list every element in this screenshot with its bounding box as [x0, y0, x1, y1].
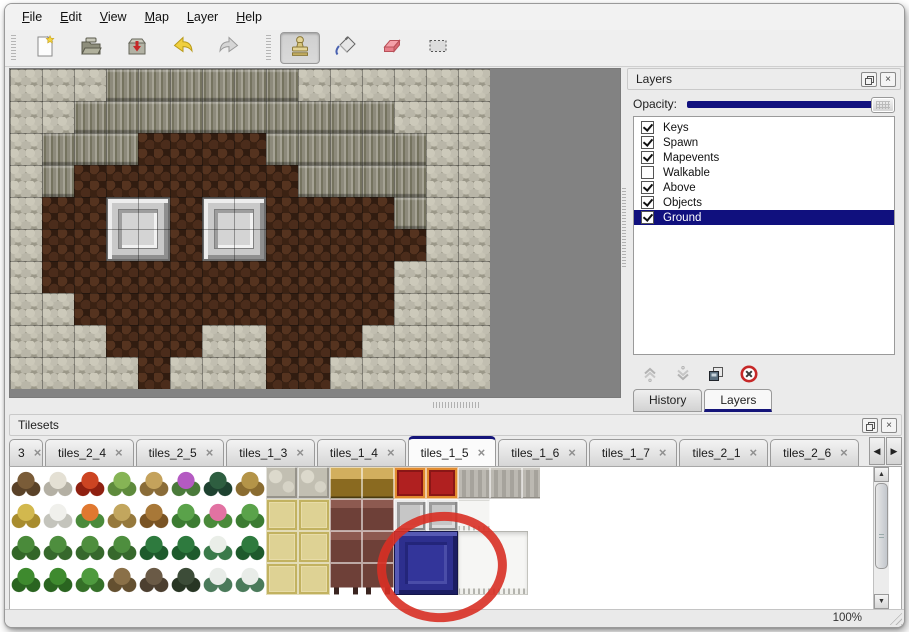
- map-tile-ground: [42, 197, 74, 229]
- tileset-tab-label: tiles_2_1: [692, 446, 740, 460]
- layer-name: Above: [663, 182, 696, 194]
- map-tile-wall-top: [10, 261, 42, 293]
- map-tile-wall-face: [362, 101, 394, 133]
- tileset-tile-trunk[interactable]: [138, 467, 170, 499]
- map-tile-wall-top: [426, 197, 458, 229]
- map-tile-ground: [202, 133, 234, 165]
- tab-scroll-right-icon[interactable]: ▶: [886, 437, 902, 465]
- tileset-tile-table-maroon-legs[interactable]: [330, 563, 362, 595]
- layer-visibility-checkbox[interactable]: [641, 211, 654, 224]
- map-tile-wall-top: [426, 101, 458, 133]
- map-tile-ground: [266, 261, 298, 293]
- map-tile-ground: [138, 133, 170, 165]
- layer-row-spawn[interactable]: Spawn: [634, 135, 894, 150]
- map-tile-ground: [138, 165, 170, 197]
- map-tile-wall-face: [298, 165, 330, 197]
- tileset-tile-mat-tan[interactable]: [298, 499, 330, 531]
- map-tile-wall-face: [330, 101, 362, 133]
- undo-arrow-icon: [171, 34, 195, 63]
- toolbar-drag-handle[interactable]: [11, 35, 16, 61]
- map-tile-wall-top: [426, 229, 458, 261]
- float-icon[interactable]: [861, 72, 877, 87]
- layer-name: Spawn: [663, 137, 698, 149]
- map-tile-wall-face: [362, 133, 394, 165]
- close-icon[interactable]: ×: [881, 418, 897, 433]
- map-tile-ground: [266, 357, 298, 389]
- layers-dock: Layers × Opacity: KeysSpawnMapeventsWalk…: [627, 68, 901, 412]
- menu-bar: FileEditViewMapLayerHelp: [5, 4, 904, 30]
- map-tile-wall-top: [394, 69, 426, 101]
- tileset-tab-tiles_1_5[interactable]: tiles_1_5×: [408, 436, 497, 467]
- tileset-tile-sprouts[interactable]: [10, 531, 42, 563]
- layer-row-mapevents[interactable]: Mapevents: [634, 150, 894, 165]
- tileset-tile-stone[interactable]: [266, 467, 298, 499]
- map-tile-wall-top: [458, 69, 490, 101]
- tileset-tile-flowers-orange[interactable]: [74, 499, 106, 531]
- menu-map[interactable]: Map: [136, 6, 178, 28]
- float-icon[interactable]: [862, 418, 878, 433]
- map-tile-ground: [138, 357, 170, 389]
- menu-help[interactable]: Help: [227, 6, 271, 28]
- map-tile-ground: [362, 197, 394, 229]
- map-tile-wall-top: [74, 325, 106, 357]
- menu-view[interactable]: View: [91, 6, 136, 28]
- map-tile-wall-face: [394, 165, 426, 197]
- map-tile-ground: [170, 293, 202, 325]
- tileset-tab-tiles_1_4[interactable]: tiles_1_4×: [317, 439, 406, 466]
- map-tile-wall-face: [42, 133, 74, 165]
- map-tile-wall-top: [42, 325, 74, 357]
- map-tile-wall-top: [10, 357, 42, 389]
- tileset-tabbar: 3×tiles_2_4×tiles_2_5×tiles_1_3×tiles_1_…: [9, 436, 902, 467]
- map-tile-ground: [106, 293, 138, 325]
- map-tile-ground: [298, 293, 330, 325]
- tileset-tile-table-gold[interactable]: [362, 467, 394, 499]
- map-tile-ground: [202, 261, 234, 293]
- status-bar: 100%: [5, 609, 904, 627]
- map-tile-ground: [266, 229, 298, 261]
- layer-row-walkable[interactable]: Walkable: [634, 165, 894, 180]
- tileset-tile-tree-white[interactable]: [42, 467, 74, 499]
- map-tile-ground: [74, 197, 106, 229]
- layer-name: Ground: [663, 212, 701, 224]
- layer-row-objects[interactable]: Objects: [634, 195, 894, 210]
- map-tile-wall-face: [202, 101, 234, 133]
- tileset-tab-label: tiles_1_6: [511, 446, 559, 460]
- tileset-tile-pine-snow[interactable]: [234, 563, 266, 595]
- map-tile-wall-face: [362, 165, 394, 197]
- tileset-tile-block-silver[interactable]: [426, 499, 458, 531]
- tab-close-icon[interactable]: ×: [750, 446, 758, 459]
- map-tile-wall-top: [10, 165, 42, 197]
- map-tile-wall-face: [330, 165, 362, 197]
- zoom-level: 100%: [833, 612, 862, 624]
- opacity-track[interactable]: [687, 101, 891, 108]
- map-tile-wall-top: [426, 357, 458, 389]
- map-tile-ground: [202, 293, 234, 325]
- map-tile-wall-top: [394, 261, 426, 293]
- stamp-tool-button[interactable]: [280, 32, 320, 64]
- tileset-tile-mat-tan[interactable]: [298, 531, 330, 563]
- map-tile-wall-top: [74, 357, 106, 389]
- map-tile-wall-top: [330, 357, 362, 389]
- tab-close-icon[interactable]: ×: [115, 446, 123, 459]
- undo-button[interactable]: [163, 32, 203, 64]
- tileset-tile-tree-dark[interactable]: [170, 563, 202, 595]
- tileset-tile-tree-green[interactable]: [74, 563, 106, 595]
- map-tile-ground: [362, 229, 394, 261]
- map-tile-wall-face: [202, 69, 234, 101]
- map-pedestal-tile: [106, 197, 170, 261]
- redo-arrow-icon: [217, 34, 241, 63]
- map-tile-ground: [170, 261, 202, 293]
- tileset-tile-palm[interactable]: [138, 531, 170, 563]
- map-tile-wall-face: [266, 69, 298, 101]
- tileset-tile-carpet-red[interactable]: [426, 467, 458, 499]
- layers-dock-title: Layers ×: [627, 68, 901, 90]
- map-tile-wall-top: [426, 261, 458, 293]
- map-tile-ground: [170, 165, 202, 197]
- save-button[interactable]: [117, 32, 157, 64]
- tileset-tab-label: tiles_1_3: [239, 446, 287, 460]
- tab-close-icon[interactable]: ×: [296, 446, 304, 459]
- tileset-tile-lily-pad[interactable]: [234, 499, 266, 531]
- map-tile-wall-face: [138, 101, 170, 133]
- tilesets-dock-title: Tilesets ×: [9, 414, 902, 436]
- map-tile-wall-top: [458, 101, 490, 133]
- map-tile-wall-face: [266, 101, 298, 133]
- tileset-tile-blank[interactable]: [490, 499, 522, 531]
- map-tile-ground: [234, 133, 266, 165]
- map-tile-ground: [234, 293, 266, 325]
- tileset-tile-palm[interactable]: [234, 531, 266, 563]
- tileset-tile-pine-snow[interactable]: [202, 563, 234, 595]
- duplicate-layer-icon[interactable]: [705, 363, 727, 385]
- redo-button[interactable]: [209, 32, 249, 64]
- tileset-tab-tiles_2_4[interactable]: tiles_2_4×: [45, 439, 134, 466]
- map-tile-wall-top: [74, 69, 106, 101]
- map-tile-wall-top: [458, 357, 490, 389]
- map-tile-wall-face: [394, 197, 426, 229]
- map-tile-wall-top: [202, 325, 234, 357]
- tileset-tab-tiles_2_6[interactable]: tiles_2_6×: [770, 439, 859, 466]
- map-tile-wall-face: [170, 101, 202, 133]
- tileset-tile-table-maroon[interactable]: [362, 499, 394, 531]
- map-tile-ground: [298, 261, 330, 293]
- tileset-tile-flowers-pink[interactable]: [202, 499, 234, 531]
- tilesets-dock-title-label: Tilesets: [18, 418, 59, 432]
- tileset-tab-tiles_1_6[interactable]: tiles_1_6×: [498, 439, 587, 466]
- tileset-tile-mat-tan[interactable]: [266, 499, 298, 531]
- paint-bucket-icon: [334, 34, 358, 63]
- map-tile-ground: [234, 261, 266, 293]
- tileset-tile-mound-snow[interactable]: [42, 499, 74, 531]
- map-tile-ground: [266, 197, 298, 229]
- map-tile-wall-top: [10, 133, 42, 165]
- map-tile-wall-top: [458, 197, 490, 229]
- tileset-blue-block[interactable]: [394, 531, 458, 595]
- tileset-tab-label: tiles_1_4: [330, 446, 378, 460]
- tab-close-icon[interactable]: ×: [478, 446, 486, 459]
- tileset-tile-fabric-gray[interactable]: [490, 467, 522, 499]
- map-tile-ground: [266, 165, 298, 197]
- map-tile-wall-top: [426, 165, 458, 197]
- tileset-tile-tree-dead[interactable]: [138, 563, 170, 595]
- map-tile-wall-face: [74, 133, 106, 165]
- map-tile-wall-top: [426, 293, 458, 325]
- new-file-button[interactable]: [25, 32, 65, 64]
- map-tile-ground: [298, 229, 330, 261]
- save-icon: [125, 34, 149, 63]
- map-tile-ground: [330, 325, 362, 357]
- tileset-tab-tiles_1_3[interactable]: tiles_1_3×: [226, 439, 315, 466]
- open-folder-icon: [79, 34, 103, 63]
- tileset-tile-tree-bare[interactable]: [10, 467, 42, 499]
- menu-edit[interactable]: Edit: [51, 6, 91, 28]
- tileset-tile-fabric-gray[interactable]: [458, 467, 490, 499]
- menu-layer[interactable]: Layer: [178, 6, 227, 28]
- layer-visibility-checkbox[interactable]: [641, 166, 654, 179]
- tab-close-icon[interactable]: ×: [34, 446, 42, 459]
- map-tile-ground: [170, 133, 202, 165]
- tileset-tile-mat-tan[interactable]: [266, 531, 298, 563]
- map-tile-ground: [74, 293, 106, 325]
- tileset-tile-pine-green[interactable]: [10, 563, 42, 595]
- tileset-tab-label: 3: [18, 446, 25, 460]
- tileset-tile-bush-green[interactable]: [74, 531, 106, 563]
- tileset-tile-bush-green[interactable]: [106, 531, 138, 563]
- map-tile-wall-top: [458, 325, 490, 357]
- tileset-tile-fern-dark[interactable]: [202, 467, 234, 499]
- open-button[interactable]: [71, 32, 111, 64]
- map-tile-ground: [266, 293, 298, 325]
- map-tile-ground: [170, 325, 202, 357]
- dock-tab-layers[interactable]: Layers: [704, 389, 772, 412]
- tileset-tile-table-maroon[interactable]: [330, 531, 362, 563]
- delete-layer-icon[interactable]: [738, 363, 760, 385]
- tileset-tile-tree-twisted[interactable]: [106, 563, 138, 595]
- resize-grip[interactable]: [888, 611, 902, 625]
- map-tile-ground: [330, 229, 362, 261]
- map-tile-wall-top: [426, 325, 458, 357]
- layer-visibility-checkbox[interactable]: [641, 121, 654, 134]
- tileset-tile-bush-purple[interactable]: [170, 467, 202, 499]
- tileset-tab-3[interactable]: 3×: [9, 439, 43, 466]
- map-tile-ground: [202, 165, 234, 197]
- layer-name: Objects: [663, 197, 702, 209]
- tileset-tab-label: tiles_2_6: [783, 446, 831, 460]
- map-tile-wall-top: [234, 325, 266, 357]
- tileset-tile-table-maroon-legs[interactable]: [362, 563, 394, 595]
- map-tile-wall-top: [202, 357, 234, 389]
- map-tile-wall-top: [426, 133, 458, 165]
- map-tile-ground: [298, 197, 330, 229]
- tileset-tile-mat-tan[interactable]: [266, 563, 298, 595]
- map-tile-wall-top: [394, 357, 426, 389]
- layer-row-above[interactable]: Above: [634, 180, 894, 195]
- layers-dock-title-label: Layers: [636, 72, 672, 86]
- tileset-tile-palm[interactable]: [170, 531, 202, 563]
- map-tile-wall-top: [362, 357, 394, 389]
- close-icon[interactable]: ×: [880, 72, 896, 87]
- stamp-icon: [288, 34, 312, 63]
- scroll-up-icon[interactable]: ▲: [874, 467, 889, 482]
- layer-row-ground[interactable]: Ground: [634, 210, 894, 225]
- eraser-icon: [380, 34, 404, 63]
- layer-visibility-checkbox[interactable]: [641, 136, 654, 149]
- tileset-tile-flower-red[interactable]: [74, 467, 106, 499]
- map-tile-wall-face: [234, 69, 266, 101]
- layer-row-keys[interactable]: Keys: [634, 120, 894, 135]
- map-tile-wall-top: [10, 325, 42, 357]
- tileset-tile-leaves[interactable]: [138, 499, 170, 531]
- tileset-tile-pine-green[interactable]: [42, 563, 74, 595]
- tileset-tile-twig[interactable]: [234, 467, 266, 499]
- map-tile-wall-top: [42, 293, 74, 325]
- tileset-tab-tiles_2_1[interactable]: tiles_2_1×: [679, 439, 768, 466]
- dock-tab-history[interactable]: History: [633, 389, 702, 412]
- map-tile-ground: [298, 357, 330, 389]
- opacity-slider[interactable]: [687, 97, 895, 111]
- map-tile-ground: [138, 261, 170, 293]
- map-tile-wall-top: [170, 357, 202, 389]
- map-tile-wall-top: [458, 293, 490, 325]
- tileset-tile-mat-tan[interactable]: [298, 563, 330, 595]
- tileset-tile-fabric-gray[interactable]: [522, 467, 540, 499]
- tileset-tile-mound-yellow[interactable]: [10, 499, 42, 531]
- tab-close-icon[interactable]: ×: [387, 446, 395, 459]
- tab-close-icon[interactable]: ×: [659, 446, 667, 459]
- tileset-tile-grass-dry[interactable]: [106, 499, 138, 531]
- tileset-tab-tiles_2_5[interactable]: tiles_2_5×: [136, 439, 225, 466]
- map-tile-ground: [74, 261, 106, 293]
- map-tile-wall-top: [10, 293, 42, 325]
- select-tool-button[interactable]: [418, 32, 458, 64]
- tilesets-dock: Tilesets × 3×tiles_2_4×tiles_2_5×tiles_1…: [9, 414, 902, 610]
- map-tile-ground: [106, 325, 138, 357]
- map-tile-ground: [330, 261, 362, 293]
- map-tile-wall-face: [234, 101, 266, 133]
- move-down-icon[interactable]: [672, 363, 694, 385]
- tab-close-icon[interactable]: ×: [568, 446, 576, 459]
- map-tile-ground: [170, 197, 202, 229]
- tileset-tile-blank[interactable]: [522, 499, 540, 531]
- tileset-tile-palm-snow[interactable]: [202, 531, 234, 563]
- tileset-tile-lily-pad[interactable]: [170, 499, 202, 531]
- tileset-tile-bush-green[interactable]: [42, 531, 74, 563]
- opacity-label: Opacity:: [633, 97, 677, 111]
- map-tile-ground: [362, 261, 394, 293]
- layer-name: Walkable: [663, 167, 710, 179]
- map-tile-wall-face: [330, 133, 362, 165]
- tileset-tab-label: tiles_2_5: [149, 446, 197, 460]
- map-tile-wall-face: [298, 133, 330, 165]
- tab-scroll-left-icon[interactable]: ◀: [869, 437, 885, 465]
- selection-rect-icon: [426, 34, 450, 63]
- map-tile-ground: [330, 197, 362, 229]
- tab-close-icon[interactable]: ×: [206, 446, 214, 459]
- map-pedestal-tile: [202, 197, 266, 261]
- map-tile-ground: [106, 165, 138, 197]
- map-tile-wall-face: [266, 133, 298, 165]
- tab-close-icon[interactable]: ×: [840, 446, 848, 459]
- map-tile-ground: [106, 261, 138, 293]
- layer-visibility-checkbox[interactable]: [641, 151, 654, 164]
- tileset-tile-block-silver[interactable]: [394, 499, 426, 531]
- map-tile-wall-top: [458, 261, 490, 293]
- map-tile-wall-top: [10, 197, 42, 229]
- map-tile-ground: [362, 293, 394, 325]
- tileset-content: ▲ ▼: [9, 466, 902, 610]
- dock-tabbar: HistoryLayers: [633, 389, 774, 412]
- menu-file[interactable]: File: [13, 6, 51, 28]
- map-tile-wall-top: [394, 325, 426, 357]
- tileset-scrollbar[interactable]: ▲ ▼: [873, 467, 889, 609]
- map-tile-wall-top: [330, 69, 362, 101]
- app-window: FileEditViewMapLayerHelp Layers × Opacit…: [4, 3, 905, 628]
- map-tile-ground: [42, 229, 74, 261]
- map-tile-wall-face: [74, 101, 106, 133]
- scrollbar-thumb[interactable]: [875, 483, 888, 569]
- map-tile-wall-top: [298, 69, 330, 101]
- tileset-tile-stone[interactable]: [298, 467, 330, 499]
- tileset-tile-curtain-white[interactable]: [458, 499, 490, 531]
- new-file-icon: [33, 34, 57, 63]
- map-tile-wall-top: [458, 133, 490, 165]
- map-tile-ground: [266, 325, 298, 357]
- toolbar: [5, 30, 904, 67]
- map-tile-wall-face: [170, 69, 202, 101]
- tileset-tab-tiles_1_7[interactable]: tiles_1_7×: [589, 439, 678, 466]
- map-tile-wall-top: [362, 325, 394, 357]
- tileset-tab-label: tiles_1_5: [421, 446, 469, 460]
- map-tile-ground: [298, 325, 330, 357]
- eraser-tool-button[interactable]: [372, 32, 412, 64]
- layer-visibility-checkbox[interactable]: [641, 181, 654, 194]
- map-tile-wall-top: [42, 101, 74, 133]
- toolbar-drag-handle[interactable]: [266, 35, 271, 61]
- map-tile-wall-face: [298, 101, 330, 133]
- layer-visibility-checkbox[interactable]: [641, 196, 654, 209]
- map-tile-wall-top: [362, 69, 394, 101]
- tileset-tab-label: tiles_2_4: [58, 446, 106, 460]
- tileset-tile-carpet-red[interactable]: [394, 467, 426, 499]
- map-tile-wall-top: [106, 357, 138, 389]
- map-view[interactable]: [9, 68, 621, 398]
- tileset-tile-stump[interactable]: [106, 467, 138, 499]
- layer-list: KeysSpawnMapeventsWalkableAboveObjectsGr…: [633, 116, 895, 355]
- tileset-tile-table-maroon[interactable]: [362, 531, 394, 563]
- map-tile-ground: [170, 229, 202, 261]
- map-tile-wall-top: [10, 229, 42, 261]
- map-tile-ground: [74, 165, 106, 197]
- map-tile-wall-face: [106, 69, 138, 101]
- map-tile-wall-top: [394, 293, 426, 325]
- layer-name: Mapevents: [663, 152, 719, 164]
- fill-tool-button[interactable]: [326, 32, 366, 64]
- tileset-curtain-block[interactable]: [458, 531, 528, 595]
- tileset-tile-table-gold[interactable]: [330, 467, 362, 499]
- opacity-slider-handle[interactable]: [871, 97, 895, 113]
- map-tile-ground: [42, 261, 74, 293]
- move-up-icon[interactable]: [639, 363, 661, 385]
- map-tile-ground: [138, 325, 170, 357]
- tileset-tile-table-maroon[interactable]: [330, 499, 362, 531]
- map-tile-ground: [138, 293, 170, 325]
- map-tile-wall-face: [42, 165, 74, 197]
- map-tile-wall-face: [394, 133, 426, 165]
- scroll-down-icon[interactable]: ▼: [874, 594, 889, 609]
